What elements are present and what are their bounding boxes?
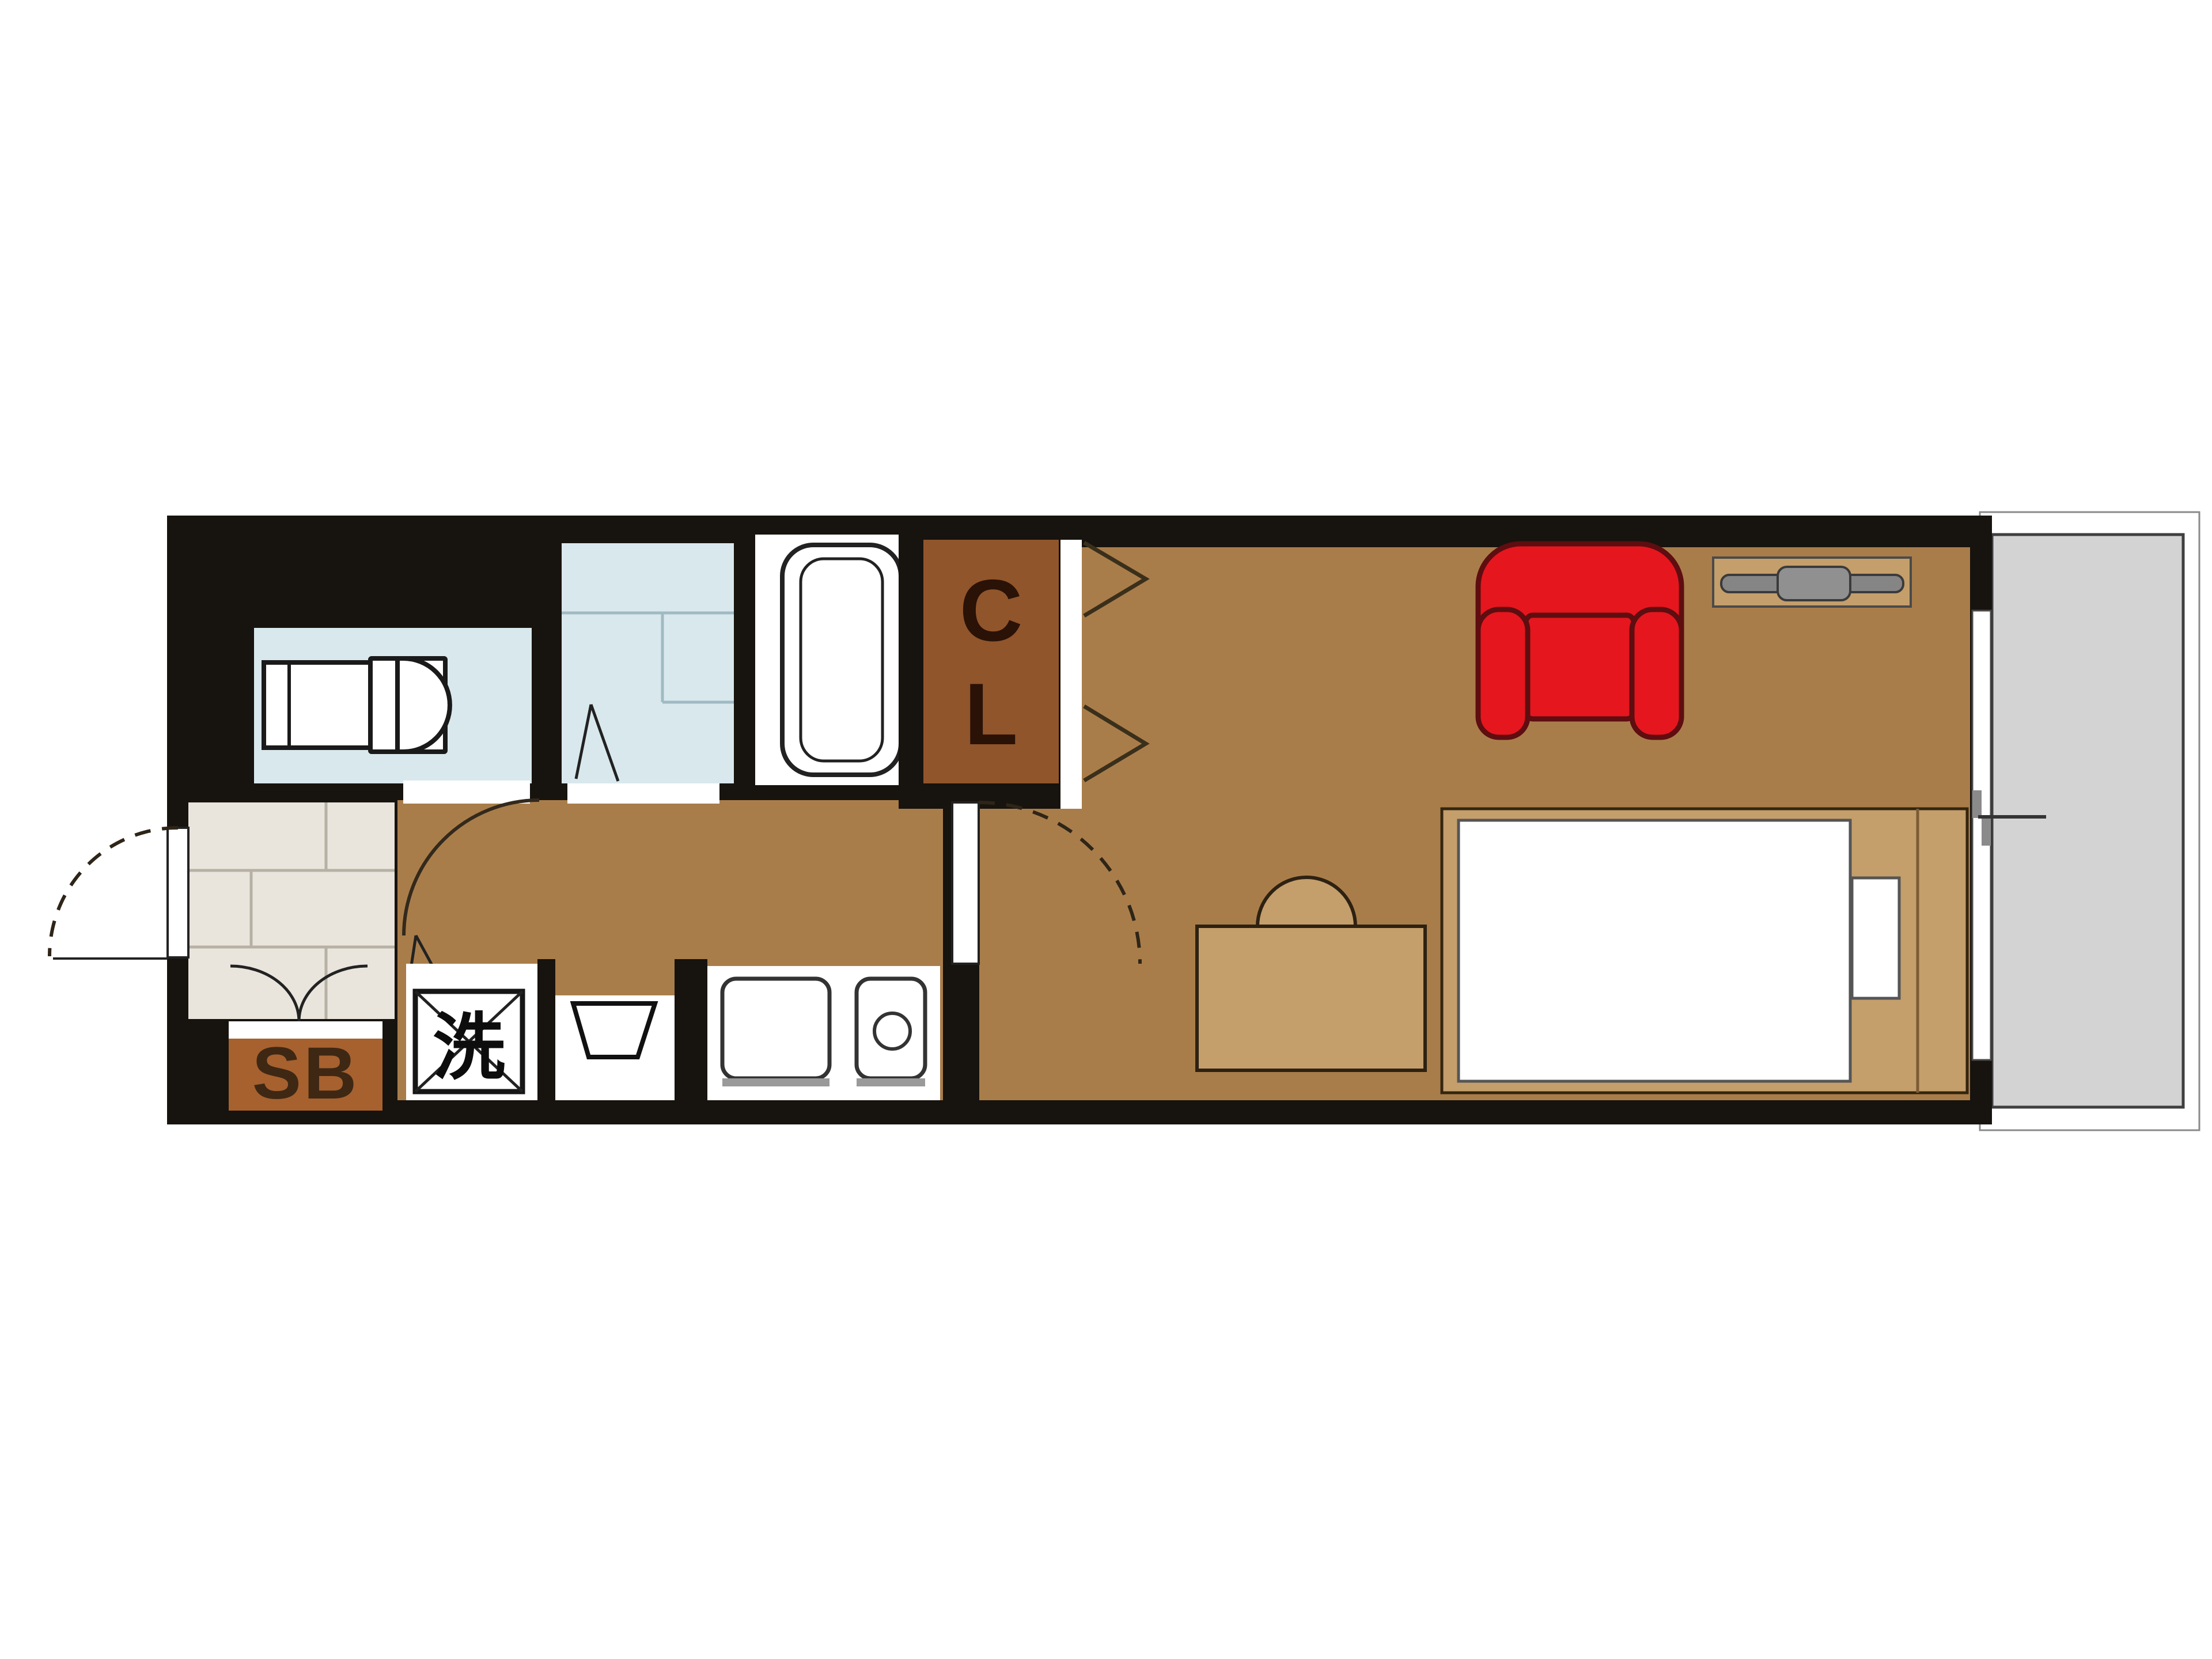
shower-door-threshold xyxy=(567,783,719,804)
kitchen-burner xyxy=(874,1013,910,1049)
wash-basin xyxy=(555,995,675,1100)
toilet-room xyxy=(254,628,532,804)
kitchen xyxy=(707,966,940,1100)
kitchen-living-wall xyxy=(943,964,979,1100)
bathtub-room xyxy=(755,535,907,785)
laundry-label: 洗 xyxy=(415,991,522,1092)
shower-room xyxy=(562,543,734,804)
living-door-leaf xyxy=(952,802,979,964)
bed xyxy=(1442,809,1967,1093)
sliding-door-panel-mark xyxy=(1982,818,1991,846)
bed-mattress xyxy=(1459,820,1850,1081)
balcony xyxy=(1980,512,2199,1130)
kitchen-stove-shadow xyxy=(857,1078,925,1086)
basin-bowl xyxy=(573,1003,655,1057)
washer-sill xyxy=(406,964,537,983)
sliding-door-panel-mark xyxy=(1972,790,1982,818)
shower-room-floor xyxy=(562,543,734,783)
bed-pillow xyxy=(1852,878,1899,998)
sofa-armrest-right xyxy=(1632,609,1681,737)
entrance-door-swing-arc xyxy=(50,828,178,956)
balcony-floor xyxy=(1992,535,2183,1107)
floor-plan: CL 洗 SB xyxy=(0,0,2212,1659)
sofa xyxy=(1478,544,1681,737)
closet-label: CL xyxy=(923,547,1059,783)
closet-door-strip xyxy=(1060,540,1082,809)
table xyxy=(1197,926,1425,1070)
toilet-door-threshold xyxy=(403,781,530,804)
wall-divider xyxy=(537,959,555,1100)
shoebox-label: SB xyxy=(229,1036,382,1111)
entrance-tile xyxy=(188,802,395,1019)
tv-unit xyxy=(1778,567,1850,600)
entrance-door-leaf xyxy=(168,828,188,957)
kitchen-sink xyxy=(722,979,829,1078)
kitchen-sink-shadow xyxy=(722,1078,829,1086)
entrance-floor xyxy=(188,802,395,1019)
sofa-seat xyxy=(1526,615,1634,719)
sofa-armrest-left xyxy=(1478,609,1528,737)
tv-board xyxy=(1713,558,1911,607)
toilet-tank xyxy=(264,662,370,748)
entrance-door xyxy=(50,828,188,959)
wall-divider xyxy=(675,959,707,1100)
